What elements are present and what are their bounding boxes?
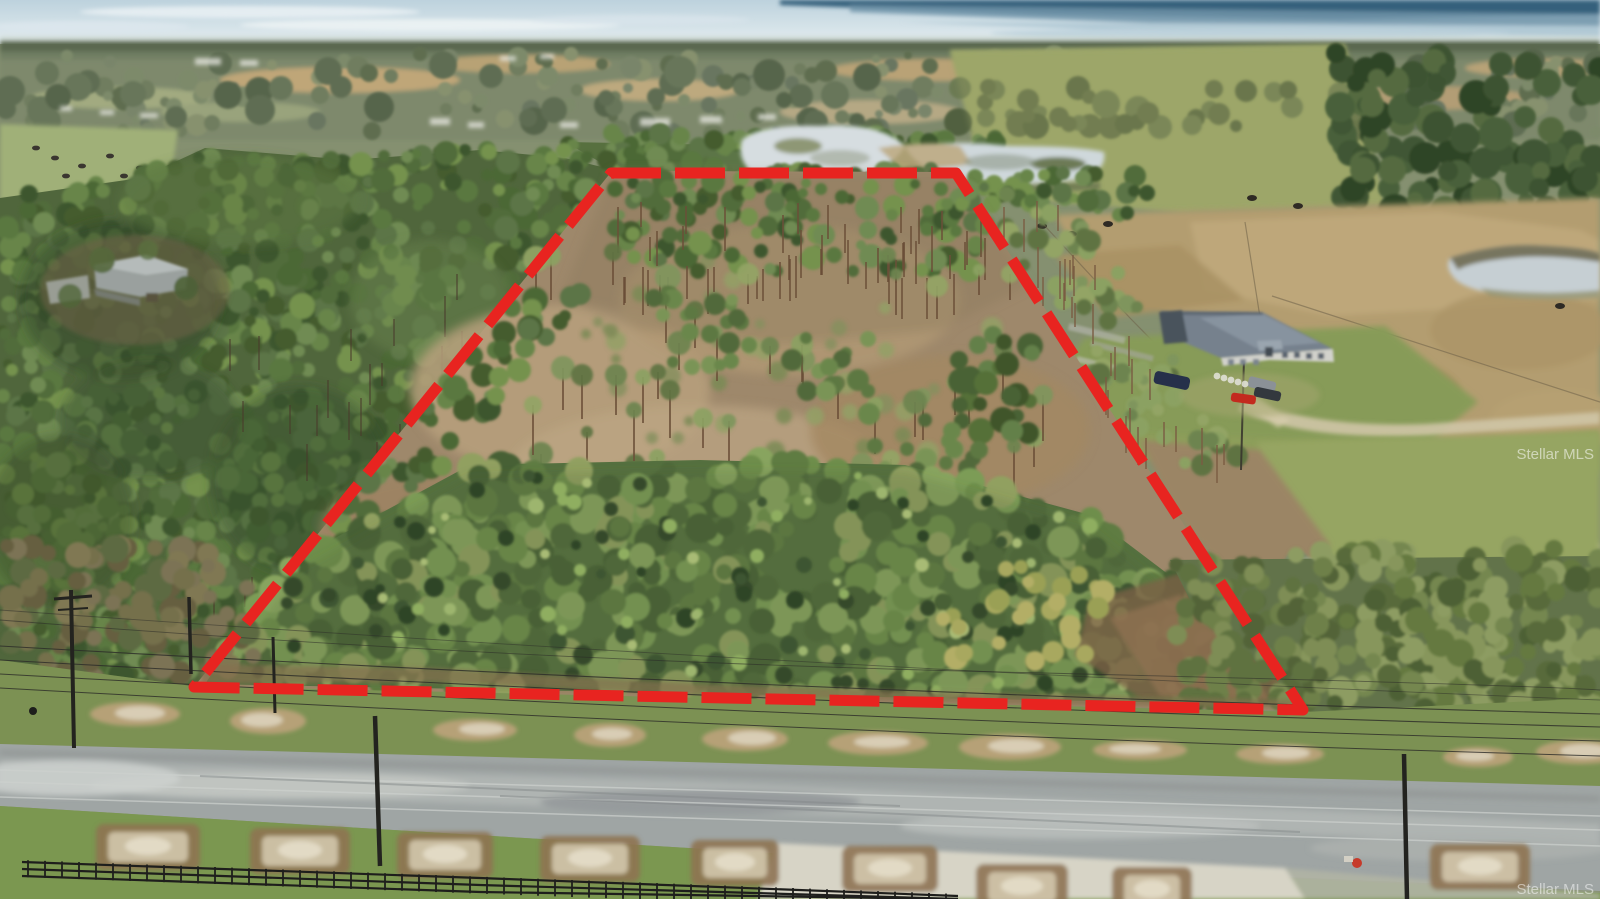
svg-text:Stellar MLS: Stellar MLS <box>1516 881 1594 898</box>
svg-text:Stellar MLS: Stellar MLS <box>1516 446 1594 463</box>
